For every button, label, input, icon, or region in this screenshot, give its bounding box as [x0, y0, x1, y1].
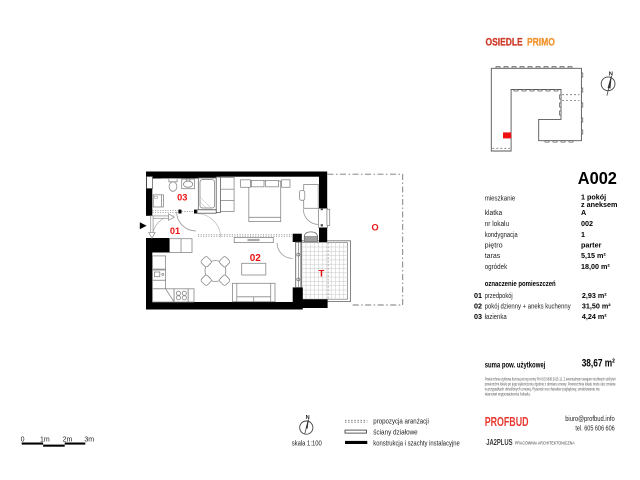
svg-text:01: 01	[170, 226, 180, 236]
svg-text:N: N	[306, 415, 310, 421]
svg-text:łazienka: łazienka	[485, 314, 507, 321]
svg-text:klatka: klatka	[485, 210, 503, 217]
svg-text:PRIMO: PRIMO	[527, 36, 555, 48]
svg-text:A002: A002	[578, 168, 617, 188]
svg-text:02: 02	[474, 301, 482, 310]
svg-text:01: 01	[474, 291, 482, 300]
svg-text:3m: 3m	[84, 436, 94, 443]
svg-text:A: A	[581, 208, 586, 217]
svg-text:JA2PLUS: JA2PLUS	[486, 438, 513, 447]
svg-text:38,67 m²: 38,67 m²	[582, 358, 615, 370]
svg-text:propozycja aranżacji: propozycja aranżacji	[373, 416, 429, 425]
svg-text:przedpokój: przedpokój	[485, 293, 513, 300]
svg-text:18,00 m²: 18,00 m²	[581, 262, 610, 271]
svg-text:1: 1	[581, 230, 585, 239]
svg-text:PROFBUD: PROFBUD	[485, 415, 529, 429]
svg-text:1m: 1m	[40, 436, 50, 443]
svg-text:nr lokalu: nr lokalu	[485, 221, 509, 228]
svg-text:oznaczenie pomieszczeń: oznaczenie pomieszczeń	[485, 279, 556, 288]
svg-text:ogródek: ogródek	[485, 264, 508, 271]
svg-text:0: 0	[21, 436, 25, 443]
svg-text:mieszkanie: mieszkanie	[485, 195, 516, 202]
svg-text:z aneksem: z aneksem	[581, 200, 617, 209]
svg-text:kondygnacja: kondygnacja	[485, 232, 518, 239]
svg-text:4,24 m²: 4,24 m²	[582, 312, 607, 321]
svg-text:5,15 m²: 5,15 m²	[581, 251, 606, 260]
svg-text:biuro@profbud.info: biuro@profbud.info	[565, 414, 615, 423]
svg-text:ściany działowe: ściany działowe	[373, 428, 417, 437]
svg-text:03: 03	[474, 312, 482, 321]
svg-text:pokój dzienny + aneks kuchenny: pokój dzienny + aneks kuchenny	[485, 303, 571, 310]
svg-text:O: O	[372, 222, 379, 232]
svg-text:OSIEDLE: OSIEDLE	[486, 36, 523, 48]
svg-text:03: 03	[177, 192, 187, 202]
svg-text:T: T	[318, 268, 324, 279]
svg-text:skala 1:100: skala 1:100	[292, 438, 322, 447]
svg-text:31,50 m²: 31,50 m²	[582, 301, 611, 310]
svg-text:2,93 m²: 2,93 m²	[582, 291, 607, 300]
svg-text:parter: parter	[581, 241, 602, 250]
svg-text:PRACOWNIA ARCHITEKTONICZNA: PRACOWNIA ARCHITEKTONICZNA	[515, 441, 576, 446]
svg-text:tel. 605 606 606: tel. 605 606 606	[575, 424, 614, 433]
svg-text:taras: taras	[485, 253, 501, 260]
svg-text:suma pow. użytkowej: suma pow. użytkowej	[485, 360, 546, 369]
svg-text:2m: 2m	[63, 436, 73, 443]
svg-text:konstrukcja i szachty instalac: konstrukcja i szachty instalacyjne	[373, 438, 460, 447]
svg-text:stanowi wyposażenia lokalu.: stanowi wyposażenia lokalu.	[485, 392, 531, 397]
svg-text:002: 002	[581, 219, 593, 228]
svg-text:02: 02	[250, 253, 262, 264]
svg-text:piętro: piętro	[485, 243, 503, 250]
